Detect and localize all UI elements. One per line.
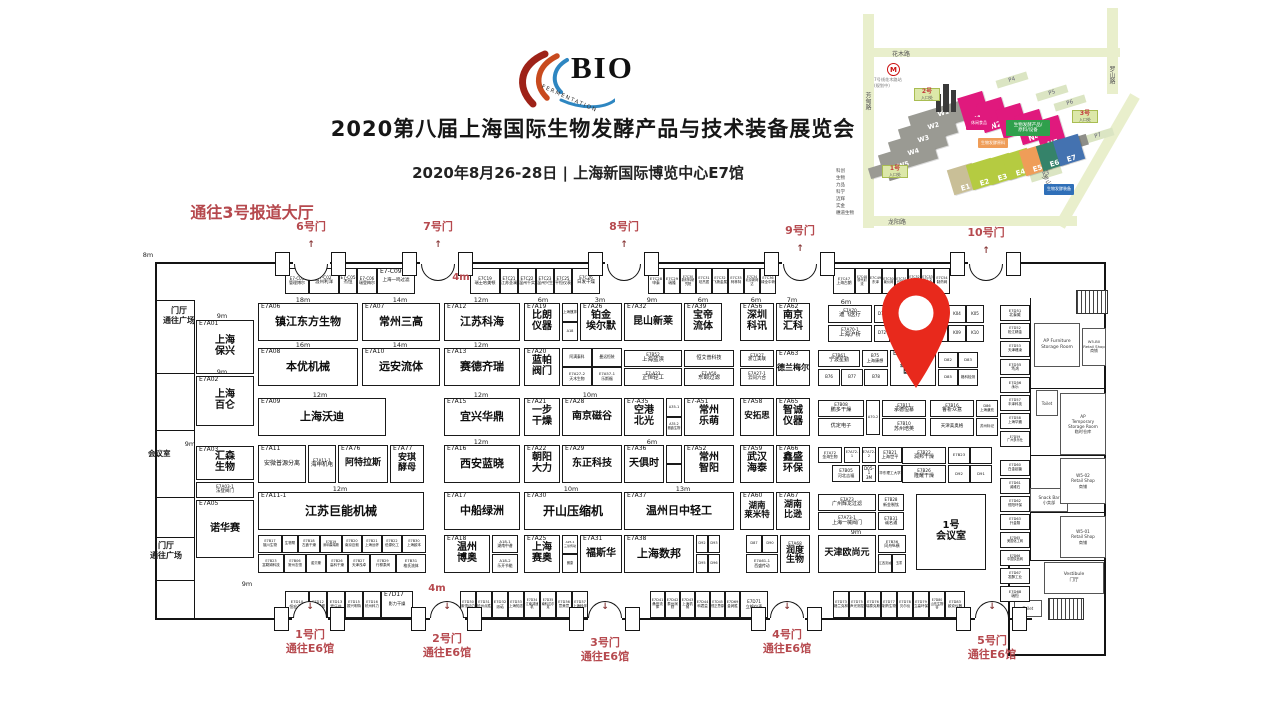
booth-E7D59: E7D59广州多乐仕 xyxy=(1000,431,1030,447)
wall-segment xyxy=(645,262,782,264)
door-leaf xyxy=(800,264,817,281)
inset-parking-P4: P4 xyxy=(996,71,1029,88)
booth-E7B22: E7B22润邦干燥 xyxy=(902,447,946,464)
booth-E7A68: E7A68润度 生物 xyxy=(780,535,810,573)
dimension-label: 9m xyxy=(851,528,861,536)
booth-E7D77: E7D77制药生物 xyxy=(881,591,897,618)
booth-E7A26: E7A26铂金 埃尔默 xyxy=(580,303,622,341)
inset-road-label: 花木路 xyxy=(892,49,910,58)
gate-arrow: ↓ xyxy=(601,602,609,613)
gate-label: 2号门 通往E6馆 xyxy=(423,632,471,660)
door-jamb xyxy=(1012,607,1027,631)
booth-B77: B77 xyxy=(841,369,863,386)
booth-E7A21: E7A21一步 干燥 xyxy=(524,398,560,436)
wall-segment xyxy=(1104,560,1106,656)
booth-E7C31: E7C31珐杰居 xyxy=(696,268,712,294)
wall-segment xyxy=(194,300,195,618)
wall-segment xyxy=(622,618,770,620)
booth-E7D17: E7D17影力干燥 xyxy=(381,591,413,618)
dimension-label: 6m xyxy=(751,296,761,304)
wall-segment xyxy=(155,537,195,538)
gate-label: 8号门 xyxy=(609,220,639,234)
wall-segment xyxy=(458,262,605,264)
booth-E7A36: E7A36天俱时 xyxy=(624,445,664,483)
dimension-label: 12m xyxy=(313,391,328,399)
wall-segment xyxy=(1030,455,1106,456)
booth-E7D53: E7D53天津峰凌 xyxy=(1000,341,1030,357)
booth-E7D33: E7D33上海知念 xyxy=(508,591,524,618)
door-jamb xyxy=(950,252,965,276)
booth-E7D66: E7D66中国饮品网 xyxy=(1000,550,1030,566)
wall-segment xyxy=(1030,388,1106,389)
dimension-label: 9m xyxy=(647,296,657,304)
booth: 朗康 xyxy=(562,554,578,573)
door-jamb xyxy=(764,252,779,276)
booth-E7A08: E7A08本优机械 xyxy=(258,348,358,386)
gate-label: 9号门 xyxy=(785,224,815,238)
inset-side-note: 科创 xyxy=(836,168,845,174)
booth: 格科检测 xyxy=(958,369,978,386)
booth-E7D63: E7D63升金翔 xyxy=(1000,514,1030,530)
gate-arrow: ↑ xyxy=(434,240,442,251)
booth: 生物帮 xyxy=(282,535,298,553)
booth-D86: D86上海谦充 xyxy=(976,400,998,417)
booth-E7A31: E7A31福斯华 xyxy=(580,535,622,573)
wall-segment xyxy=(155,618,292,620)
booth-E7A70-1: E7A70-1上海沪析 xyxy=(828,325,872,342)
booth-E7A28: E7A28南京磁谷 xyxy=(562,398,622,436)
booth-D90: D90 xyxy=(762,535,778,553)
dimension-label: 10m xyxy=(583,391,598,399)
booth: 天津美奥格 xyxy=(930,418,974,436)
door-jamb xyxy=(402,252,417,276)
area-label: 门厅 通往广场 xyxy=(163,306,195,327)
booth-E7B11: E7B11承德恒慕 xyxy=(882,400,926,417)
booth-E7B21: E7B21上海远怀 xyxy=(362,535,382,553)
booth-E7A62: E7A62南京 汇科 xyxy=(776,303,810,341)
booth-E7-A35: E7-A35空港 北光 xyxy=(624,398,664,436)
door-jamb xyxy=(820,252,835,276)
booth-E7D76: E7D76瑞泰克斯 xyxy=(865,591,881,618)
gate-label: 3号门 通往E6馆 xyxy=(581,636,629,664)
dimension-label: 6m xyxy=(647,438,657,446)
booth-D92: D92 xyxy=(696,535,708,553)
booth-D87: D87 xyxy=(746,535,762,553)
booth: 玉墨 xyxy=(892,554,906,573)
wall-segment xyxy=(1030,298,1031,560)
booth-E7A76: E7A76阿特拉斯 xyxy=(338,445,388,483)
dimension-label: 9m xyxy=(185,440,195,448)
gate-label: 4m xyxy=(452,272,469,285)
booth-E7A02: E7A02上海 百仑 xyxy=(196,376,254,426)
booth-E7B28: E7B28新金制钛 xyxy=(878,494,904,511)
booth-E7A67: E7A67湖南 比逊 xyxy=(776,492,810,530)
wall-segment xyxy=(805,618,975,620)
booth-E7-A51: E7-A51常州 乐萌 xyxy=(684,398,734,436)
booth-E7A38: E7A38上海数邦 xyxy=(624,535,694,573)
dimension-label: 12m xyxy=(474,438,489,446)
door-leaf xyxy=(607,264,624,281)
dimension-label: 18m xyxy=(296,296,311,304)
booth-E7B23: E7B23 xyxy=(948,447,970,464)
wall-segment xyxy=(1008,654,1106,656)
inset-callout: 休闲食品 xyxy=(966,117,992,130)
metro-label: (规划中) xyxy=(874,83,890,89)
door-jamb xyxy=(956,607,971,631)
inset-side-note: 科学 xyxy=(836,189,845,195)
booth-E7A03: E7A03汇森 生物 xyxy=(196,446,254,480)
booth-E7B22: E7B22伯源化工 xyxy=(382,535,402,553)
building-icon xyxy=(943,84,949,112)
facility-room: Vestibule 门厅 xyxy=(1044,562,1104,594)
booth-E7A17: E7A17中船绿洲 xyxy=(444,492,520,530)
booth-E7A16: E7A16西安蓝晓 xyxy=(444,445,520,483)
booth-E7B30: E7B30上海欧本 xyxy=(402,535,426,553)
dimension-label: 7m xyxy=(787,296,797,304)
booth-E7A37: E7A37温州日中轻工 xyxy=(624,492,734,530)
inset-road xyxy=(863,14,874,228)
booth-E7D73: E7D73格兰克林 xyxy=(833,591,849,618)
booth-E7A27-1: E7A27-1云同六合 xyxy=(740,368,774,386)
booth-E7A13: E7A13赛德齐瑞 xyxy=(444,348,520,386)
booth-E7C23: E7C23温州兴生 xyxy=(536,268,554,294)
booth-E7D15: E7D15振兴明特 xyxy=(345,591,363,618)
booth-E7C22: E7C22温州千实 xyxy=(518,268,536,294)
booth-A18-1: A18-1湖南中谱 xyxy=(492,535,518,553)
booth xyxy=(666,464,682,483)
door-leaf xyxy=(783,264,800,281)
facility-room: AP Furniture Storage Room xyxy=(1034,323,1080,367)
booth-E7C21: E7C21江苏圣澜 xyxy=(500,268,518,294)
dimension-label: 10m xyxy=(564,485,579,493)
booth-E7D65: E7D65美国化工网 xyxy=(1000,532,1030,548)
booth xyxy=(666,445,682,464)
booth-E7C47: E7C47上海古朗 xyxy=(833,268,855,294)
facility-room: Toilet xyxy=(1036,390,1058,416)
booth-E7D42: E7D42泰州润勤 xyxy=(665,591,680,618)
dimension-label: 13m xyxy=(676,485,691,493)
booth-E7A11-1: E7A11-1江苏巨能机械 xyxy=(258,492,424,530)
inset-callout: 生物发酵产品/ 原料/设备 xyxy=(1006,120,1050,136)
booth-E7A60: E7A60湖南 莱米特 xyxy=(740,492,774,530)
booth-E7B23: E7B23富勒姆科技 xyxy=(258,554,284,573)
door-jamb xyxy=(644,252,659,276)
wall-segment xyxy=(1006,262,1106,264)
wall-segment xyxy=(1030,560,1106,561)
booth-E7D62: E7D62恒阳环保 xyxy=(1000,496,1030,512)
booth-E7A32: E7A32昆山新莱 xyxy=(624,303,682,341)
booth-E7B16: E7B16鲁析众意 xyxy=(930,400,974,417)
booth-E7D67: E7D67发酵工业 xyxy=(1000,568,1030,584)
booth-E7B18: E7B18左鑫干燥 xyxy=(298,535,320,553)
booth-E7A10: E7A10远安流体 xyxy=(362,348,440,386)
booth-E7A73-1: E7A73-1上海一械阀门 xyxy=(818,512,876,530)
gate-arrow: ↓ xyxy=(988,602,996,613)
logo-text: BIO xyxy=(571,50,634,86)
booth-E7D68: E7D68瑞恒 xyxy=(1000,586,1030,602)
booth-E7B26: E7B26高科干燥 xyxy=(326,554,348,573)
door-jamb xyxy=(331,252,346,276)
booth-E7A70: E7A70迪飞医疗 xyxy=(828,305,872,323)
wall-segment xyxy=(155,580,195,581)
booth-E7A56: E7A56深圳 科讯 xyxy=(740,303,774,341)
booth-E7A77: E7A77安琪 酵母 xyxy=(390,445,424,483)
booth-E7C48: E7C48现代射流 xyxy=(855,268,869,294)
gate-label: 6号门 xyxy=(296,220,326,234)
booth-E7B52: E7B52上海蓝滨 xyxy=(624,350,682,367)
booth-E7A27: E7A27浙江美联 xyxy=(740,350,774,367)
door-jamb xyxy=(625,607,640,631)
booth-E7B31: E7B31诚名通 xyxy=(878,512,904,530)
booth-E7-A50: E7-A50东颐过滤 xyxy=(684,368,734,386)
booth-E7B08: E7B08鹏多干燥 xyxy=(818,400,864,417)
booth-E7D16: E7D16杭州科力 xyxy=(363,591,381,618)
booth-E7A73: E7A73广州辉龙过滤 xyxy=(818,494,876,511)
dimension-label: 9m xyxy=(217,368,227,376)
gate-label: 通往3号报道大厅 xyxy=(190,203,313,223)
expo-floorplan-page: BIO FERMENTATION 2020第八届上海国际生物发酵产品与技术装备展… xyxy=(0,0,1280,720)
booth-E7B10: E7B10苏州培英 xyxy=(882,418,926,436)
booth-A18-2: A18-2乐开节能 xyxy=(492,554,518,573)
booth-D95: D95 xyxy=(696,554,708,573)
dimension-label: 16m xyxy=(296,341,311,349)
inset-callout: 生物发酵装备 xyxy=(1044,184,1074,195)
gate-arrow: ↑ xyxy=(796,244,804,255)
facility-room: W5-B0 Retail Shop 商铺 xyxy=(1082,328,1106,366)
booth-E7A03-1: E7A03-1法登阀门 xyxy=(196,482,254,498)
booth-E7A72-2: E7A72-2 xyxy=(862,447,876,463)
booth-E7D80: E7D80山东生物谷 xyxy=(929,591,945,618)
area-label: 会议室 xyxy=(148,449,171,459)
booth-E7D60: E7D60白金起菌 xyxy=(1000,460,1030,476)
booth: 苏州标记 xyxy=(976,418,998,436)
booth-E7B06: E7B06常州志恒 xyxy=(284,554,306,573)
booth-E7A65: E7A65智诚 仪器 xyxy=(776,398,810,436)
facility-room: W5-01 Retail Shop 商铺 xyxy=(1060,516,1106,558)
booth-E7A09: E7A09上海沃迪 xyxy=(258,398,386,436)
booth: 优定电子 xyxy=(818,418,864,436)
door-leaf xyxy=(421,264,438,281)
booth-D05-1: D05-13M xyxy=(862,465,876,482)
booth-E7B05: E7B05河北吉福 xyxy=(832,465,860,482)
dimension-label: 12m xyxy=(474,341,489,349)
door-leaf xyxy=(969,264,986,281)
wall-segment xyxy=(155,262,157,620)
booth-D83: D83 xyxy=(958,352,978,368)
booth-E7A20: E7A20蓝帕 阀门 xyxy=(524,348,560,386)
booth: 江西流诚 xyxy=(878,554,892,573)
booth-K05: K05 xyxy=(966,305,984,323)
booth-E7C32: E7C32飞扬金属 xyxy=(712,268,728,294)
booth xyxy=(970,447,992,464)
booth-E7A57-1: E7A57-1乐斯福 xyxy=(592,367,622,386)
bio-logo: BIO FERMENTATION xyxy=(505,48,675,114)
wall-segment xyxy=(1030,512,1106,513)
booth-E7C29: E7C29瑞隆 xyxy=(664,268,680,294)
door-leaf xyxy=(624,264,641,281)
inset-callout: 生物发酵原料 xyxy=(978,138,1008,148)
wall-segment xyxy=(155,262,293,264)
booth: 天津欧尚元 xyxy=(818,535,876,573)
facility-room: AP Temporary Storage Room 临时仓库 xyxy=(1060,393,1106,455)
booth-E7C25: E7C25平恒仪表 xyxy=(554,268,572,294)
gate-label: 10号门 xyxy=(967,226,1004,240)
booth: 1号 会议室 xyxy=(916,494,986,570)
booth-E7D56: E7D56永乐 xyxy=(1000,377,1030,393)
door-jamb xyxy=(569,607,584,631)
building-icon xyxy=(951,90,956,112)
door-jamb xyxy=(588,252,603,276)
gate-label: 4号门 通往E6馆 xyxy=(763,628,811,656)
booth-E7A05: E7A05诺华赛 xyxy=(196,500,254,558)
booth-E7D41: E7D41桑田流体 xyxy=(650,591,665,618)
booth-E7B19: E7B19深圳森瑞斯 xyxy=(320,535,342,553)
booth-E7D79: E7D79立高环保 xyxy=(913,591,929,618)
stairs xyxy=(1076,290,1108,314)
door-jamb xyxy=(1006,252,1021,276)
inset-parking-P5: P5 xyxy=(1036,84,1069,101)
booth-E7D58: E7D58上海华震 xyxy=(1000,413,1030,429)
venue-inset-map: 花木路芳甸路罗山路罗山路龙阳路W1W2W3W4W5N1N2N3N4N5E1E2E… xyxy=(830,0,1280,228)
booth-E7C30: E7C30新材料研究院 xyxy=(680,268,696,294)
wall-segment xyxy=(155,497,195,498)
booth-E7A39: E7A39宝帝 流体 xyxy=(684,303,722,341)
door-jamb xyxy=(275,252,290,276)
booth: 诺贝斯 xyxy=(306,554,326,573)
booth-E7B29: E7B29行柳泵阀 xyxy=(370,554,396,573)
gate-arrow: ↑ xyxy=(982,246,990,257)
booth-E7A27-2: E7A27-2天木生物 xyxy=(562,367,592,386)
booth-D91: D91 xyxy=(970,465,992,483)
booth: 曼远恒装 xyxy=(592,348,622,367)
booth-A25-1: A25-1三垦传动 xyxy=(562,535,578,554)
booth-E7D43: E7D43上海机械 xyxy=(680,591,695,618)
facility-room: W5-02 Retail Shop 商铺 xyxy=(1060,458,1106,504)
gate-arrow: ↓ xyxy=(443,602,451,613)
inset-side-note: 穗道生物 xyxy=(836,210,854,216)
booth-D92: D92 xyxy=(948,465,970,483)
booth-E7A18: E7A18温州 博奥 xyxy=(444,535,490,573)
booth-E7C33: E7C33柯林特 xyxy=(728,268,744,294)
booth-D93: D93 xyxy=(708,535,720,553)
booth-E7B27: E7B27天津浅卓 xyxy=(348,554,370,573)
stairs xyxy=(1048,598,1084,620)
gate-label: 4m xyxy=(428,583,445,596)
booth-E7C34: E7C34北京新网达 xyxy=(744,268,760,294)
booth-E7A22: E7A22朝阳 大力 xyxy=(524,445,560,483)
booth-E7D51: E7D51北泰威 xyxy=(1000,305,1030,321)
booth-A35-1: A35-1 xyxy=(666,398,682,417)
dimension-label: 6m xyxy=(841,298,851,306)
wall-segment xyxy=(155,373,195,374)
wall-segment xyxy=(155,430,195,431)
gate-arrow: ↓ xyxy=(783,602,791,613)
dimension-label: 9m xyxy=(242,580,252,588)
dimension-label: 9m xyxy=(217,312,227,320)
booth-E7A25: E7A25上海 赛奥 xyxy=(524,535,560,573)
booth-E7A29: E7A29东正科技 xyxy=(562,445,622,483)
booth-E7D44: E7D44科君益 xyxy=(695,591,710,618)
booth-E7-C06: E7-C06瑞登梅尔 xyxy=(357,268,377,294)
booth-E7D61: E7D61诚维石 xyxy=(1000,478,1030,494)
booth-E7D69: E7D69金润胜 xyxy=(725,591,740,618)
inset-side-note: 实金 xyxy=(836,203,845,209)
booth-B76: B76 xyxy=(818,369,840,386)
dimension-label: 12m xyxy=(474,296,489,304)
booth-E7A52: E7A52常州 智阳 xyxy=(684,445,734,483)
booth-E7D52: E7D52松江精金 xyxy=(1000,323,1030,339)
booth-E7A11: E7A11安微普源分离 xyxy=(258,445,306,483)
inset-entrance: 1号入口处 xyxy=(882,165,908,178)
booth-E7A59: E7A59武汉 海泰 xyxy=(740,445,774,483)
gate-label: 5号门 通往E6馆 xyxy=(968,634,1016,662)
booth-E7A19: E7A19比朗 仪器 xyxy=(524,303,560,341)
booth-E7A58: E7A58安拓思 xyxy=(740,398,774,436)
inset-road-label: 龙阳路 xyxy=(888,217,906,226)
booth-E7D32: E7D32派诺 xyxy=(492,591,508,618)
booth: 上海搅拌 xyxy=(562,303,578,322)
metro-icon: M xyxy=(887,63,900,76)
booth-E7B21: E7B21上海世平 xyxy=(878,447,902,463)
booth-E7A01: E7A01上海 保兴 xyxy=(196,320,254,374)
booth-E7A07: E7A07常州三高 xyxy=(362,303,440,341)
booth-K10: K10 xyxy=(966,325,984,342)
dimension-label: 12m xyxy=(333,485,348,493)
booth-E7D55: E7D55笃鸿 xyxy=(1000,359,1030,375)
door-leaf xyxy=(986,264,1003,281)
booth-E7C19: E7C19瑞士哈美顿 xyxy=(470,268,500,294)
wall-segment xyxy=(820,262,968,264)
dimension-label: 8m xyxy=(143,251,153,259)
dimension-label: 12m xyxy=(474,391,489,399)
booth-E7D35: E7D35南科达尔克 xyxy=(540,591,556,618)
inset-side-note: 力品 xyxy=(836,182,845,188)
booth-E7B36: E7B36同舟纵横 xyxy=(878,535,906,553)
inset-parking-P6: P6 xyxy=(1054,94,1087,111)
booth-A18: A18 xyxy=(562,322,578,341)
gate-label: 1号门 通往E6馆 xyxy=(286,628,334,656)
booth-A70-2: A70-2 xyxy=(866,400,880,435)
booth-E7B20: E7B20南京迈勃 xyxy=(342,535,362,553)
booth-E7D78: E7D78贝尔仪 xyxy=(897,591,913,618)
booth-D96: D96 xyxy=(708,554,720,573)
booth-E7D34: E7D34江南减速机 xyxy=(524,591,540,618)
gate-arrow: ↓ xyxy=(306,602,314,613)
gate-arrow: ↑ xyxy=(307,240,315,251)
booth-E7A63: E7A63德兰梅尔 xyxy=(776,350,810,386)
area-label: 门厅 通往广场 xyxy=(150,541,182,562)
dimension-label: 14m xyxy=(393,341,408,349)
door-jamb xyxy=(411,607,426,631)
dimension-label: 3m xyxy=(595,296,605,304)
booth-E7B31: E7B31格氏流体 xyxy=(396,554,426,573)
inset-entrance: 3号入口处 xyxy=(1072,110,1098,123)
inset-side-note: 迈辉 xyxy=(836,196,845,202)
gate-arrow: ↑ xyxy=(620,240,628,251)
inset-road-label: 芳甸路 xyxy=(863,92,872,110)
booth-A35-2: A35-2雅鑫生物 xyxy=(666,417,682,436)
booth-E7A15: E7A15宜兴华鼎 xyxy=(444,398,520,436)
booth-E7D45: E7D45恒正思源 xyxy=(710,591,725,618)
booth: 华东理工大学 xyxy=(878,465,902,482)
booth-E7A06: E7A06镇江东方生物 xyxy=(258,303,358,341)
booth: 阿满泰科 xyxy=(562,348,592,367)
booth-E7B61: E7B61宁波星勤 xyxy=(818,350,860,367)
booth-E7A72: E7A72金海生物 xyxy=(818,447,842,463)
dimension-label: 6m xyxy=(698,296,708,304)
inset-side-note: 生物 xyxy=(836,175,845,181)
wall-segment xyxy=(155,300,195,301)
